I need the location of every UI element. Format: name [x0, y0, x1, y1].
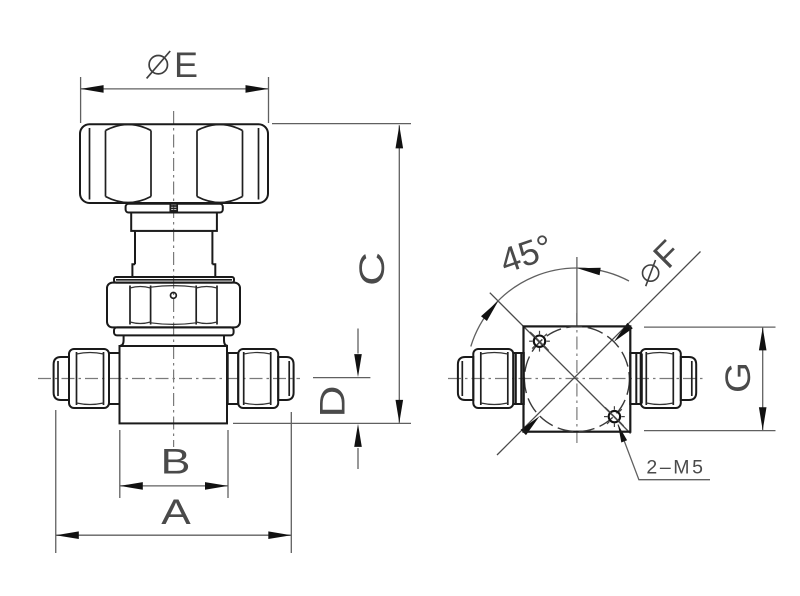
- svg-text:D: D: [313, 386, 352, 418]
- svg-text:E: E: [174, 46, 198, 85]
- svg-text:G: G: [719, 362, 758, 393]
- svg-text:C: C: [353, 252, 392, 286]
- svg-text:A: A: [161, 493, 191, 532]
- svg-text:B: B: [161, 442, 191, 481]
- svg-text:2–M5: 2–M5: [646, 456, 705, 478]
